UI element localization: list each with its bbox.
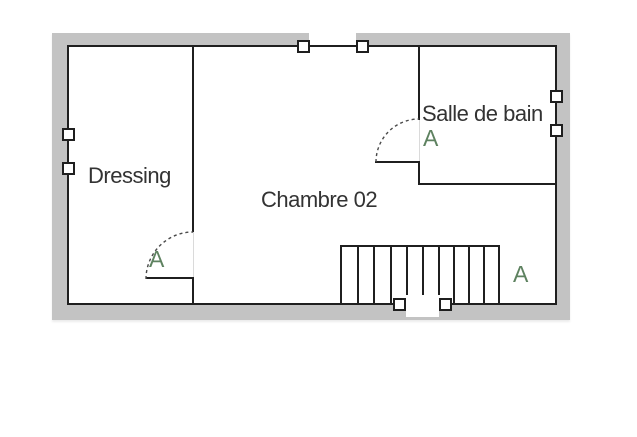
bathroom-door-swing-arc-icon bbox=[370, 113, 426, 169]
wall-dressing-divider-upper bbox=[192, 47, 194, 232]
stair-tread bbox=[438, 247, 440, 295]
stair-tread bbox=[422, 247, 424, 295]
window-right-upper-handle bbox=[550, 90, 563, 103]
stair-tread bbox=[390, 247, 392, 303]
room-label-chambre-02: Chambre 02 bbox=[261, 187, 377, 213]
window-bottom-right-handle bbox=[439, 298, 452, 311]
window-left-lower-handle bbox=[62, 162, 75, 175]
door-mark-stairs: A bbox=[513, 261, 528, 288]
window-right-lower-handle bbox=[550, 124, 563, 137]
window-top-right-handle bbox=[356, 40, 369, 53]
stair-tread bbox=[483, 247, 485, 303]
window-top-left-handle bbox=[297, 40, 310, 53]
window-bottom-left-handle bbox=[393, 298, 406, 311]
window-left-upper-handle bbox=[62, 128, 75, 141]
door-mark-bathroom: A bbox=[423, 125, 438, 152]
floor-plan: Dressing Chambre 02 Salle de bain A A A bbox=[52, 33, 570, 320]
window-bottom-opening bbox=[406, 301, 439, 317]
stair-tread bbox=[498, 247, 500, 303]
stair-tread bbox=[468, 247, 470, 303]
stair-tread bbox=[453, 247, 455, 303]
stair-tread bbox=[340, 247, 342, 303]
room-label-salle-de-bain: Salle de bain bbox=[422, 101, 543, 127]
door-mark-dressing: A bbox=[149, 246, 164, 273]
wall-bathroom-left-upper bbox=[418, 47, 420, 120]
floor-plan-page: Dressing Chambre 02 Salle de bain A A A bbox=[0, 0, 637, 437]
stair-tread bbox=[357, 247, 359, 303]
room-label-dressing: Dressing bbox=[88, 163, 171, 189]
wall-bathroom-bottom bbox=[418, 183, 557, 185]
stair-tread bbox=[373, 247, 375, 303]
staircase bbox=[340, 245, 500, 303]
stair-tread bbox=[406, 247, 408, 295]
window-top-glass-line bbox=[309, 45, 356, 47]
